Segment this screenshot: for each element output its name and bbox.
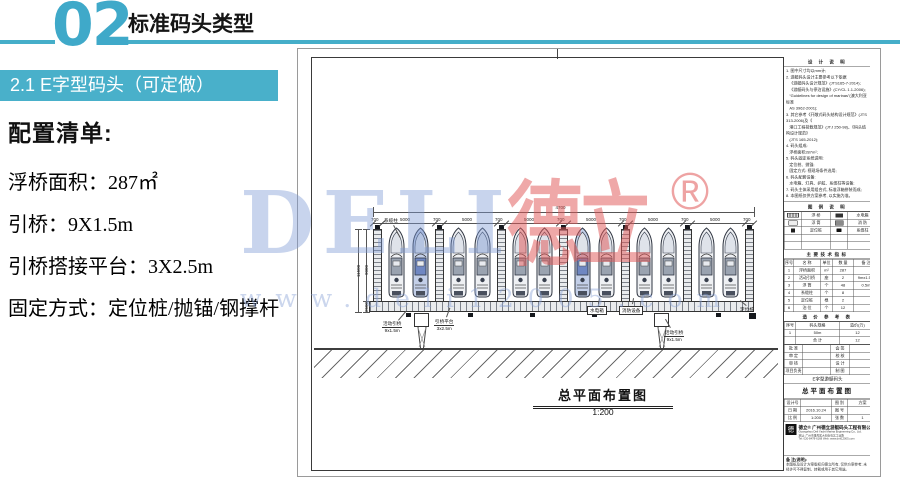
tech-title: 主要技术指标 [784, 249, 870, 259]
config-heading: 配置清单: [8, 114, 302, 148]
boat [449, 227, 468, 299]
boat [511, 227, 530, 299]
table-row: 定位桩系缆柱 [784, 227, 870, 235]
table-row: 150m12 [784, 329, 870, 337]
boat [473, 227, 492, 299]
table-cell [803, 360, 831, 368]
table-cell [784, 212, 802, 220]
boat-length-dim-value: 9000 [364, 265, 369, 275]
table-row: 日 期2016.10.24图 号 [784, 407, 870, 415]
tech-table-grid: 序号名 称单位数 量备 注1浮桥面积m²2872活动引桥座29mx1.5m3浮 … [784, 259, 870, 312]
table-cell: 1 [848, 414, 870, 422]
table-cell [848, 242, 870, 250]
label-platform: 引桥平台3x2.5m [434, 319, 454, 331]
table-cell: 2016.10.24 [801, 407, 832, 415]
dim-tick [751, 220, 757, 226]
legend-table-grid: 浮 桥水电箱浮 筒消 防定位桩系缆柱 [784, 211, 870, 249]
table-cell: 12 [833, 304, 854, 312]
shore-hatch [314, 350, 778, 378]
fire-symbol-icon [835, 220, 844, 225]
table-cell [848, 234, 870, 242]
company-contact: Tel: 020-8478-6168 Web: www.deli12005.co… [799, 437, 871, 440]
boat [535, 227, 554, 299]
overall-dimension-value: 4700 [556, 205, 566, 210]
table-cell [853, 297, 870, 305]
table-row: 审 核设 计 [784, 360, 870, 368]
finger-dim-value: 700 [495, 217, 503, 222]
config-item: 引桥搭接平台：3X2.5m [8, 246, 302, 288]
table-cell: 287 [833, 267, 854, 275]
finger-pier [373, 229, 382, 302]
table-cell [848, 407, 870, 415]
table-cell: 方案 [848, 399, 870, 407]
label-positioning-pile: 定位桩 [740, 307, 754, 313]
table-row: 1浮桥面积m²287 [784, 267, 870, 275]
table-row: 项目负责制 图 [784, 367, 870, 375]
header-rule-left [0, 40, 55, 44]
table-cell [784, 242, 802, 250]
boat [659, 227, 678, 299]
note-line: 《游艇码头设计规范》(JTS165-7-2014); [786, 81, 869, 87]
boat [697, 227, 716, 299]
table-row: 4系缆柱个8 [784, 289, 870, 297]
table-cell [849, 360, 870, 368]
label-fire-equipment: 消防设备 [619, 306, 643, 315]
company-block: 德 德立® 广州德立游艇码头工程有限公司 Guangzhou Deli Yach… [784, 422, 870, 456]
table-cell [784, 227, 802, 235]
table-cell: 消 防 [848, 219, 870, 227]
brand-name: 德立® [799, 425, 811, 430]
table-cell [830, 242, 848, 250]
price-title: 造 价 参 考 表 [784, 312, 870, 322]
table-cell: 校 核 [831, 352, 850, 360]
drawing-scale: 1:200 [533, 407, 673, 417]
table-cell: 个 [820, 282, 833, 290]
overall-dimension-line [373, 212, 754, 213]
dimension-extension [754, 207, 755, 217]
pile-symbol-icon [791, 228, 795, 232]
table-cell: 12 [839, 337, 870, 345]
design-notes: 1. 图中尺寸均以mm计;2. 游艇码头设计主要参考以下依据 《游艇码头设计规范… [784, 67, 870, 202]
table-cell: 名 称 [794, 259, 821, 267]
finger-pier [745, 229, 754, 302]
finger-dim-value: 700 [619, 217, 627, 222]
box-symbol-icon [835, 213, 843, 217]
price-table-grid: 序号码头规格造价(万)150m12合 计12 [784, 321, 870, 344]
table-cell: 系缆柱 [848, 227, 870, 235]
boat [573, 227, 592, 299]
finger-pier [559, 229, 568, 302]
section-title: 标准码头类型 [128, 8, 254, 38]
table-cell: 设 计 [831, 360, 850, 368]
table-cell: 8 [833, 289, 854, 297]
finger-pier [435, 229, 444, 302]
walkway-cleat [406, 313, 411, 317]
finger-pier [683, 229, 692, 302]
table-row [784, 242, 870, 250]
dim-tick [363, 312, 370, 313]
table-cell: 会 签 [831, 345, 850, 353]
table-cell [784, 234, 802, 242]
table-cell: 单位 [820, 259, 833, 267]
finger-dim-value: 700 [743, 217, 751, 222]
table-cell: 3 [784, 282, 794, 290]
table-row: 合 计12 [784, 337, 870, 345]
table-cell [830, 212, 848, 220]
slide-canvas: { "slide": { "accent_color": "#45AEC9", … [0, 0, 900, 485]
table-cell: 张 数 [831, 414, 848, 422]
tech-table: 序号名 称单位数 量备 注1浮桥面积m²2872活动引桥座29mx1.5m3浮 … [784, 259, 870, 312]
finger-dim-value: 700 [557, 217, 565, 222]
gangway-platform [414, 313, 429, 327]
boat [597, 227, 616, 299]
table-cell: 2 [784, 274, 794, 282]
table-cell: 9mx1.5m [853, 274, 870, 282]
meta-table-grid: 设计号图 别方案日 期2016.10.24图 号比 例1:200张 数1 [784, 399, 870, 422]
header-rule-right [121, 40, 900, 44]
engineering-drawing-panel: 4700700500070050007005000700500070050007… [297, 48, 881, 477]
table-cell: 活动引桥 [794, 274, 821, 282]
label-utility-box: 水电箱 [587, 306, 607, 315]
finger-dim-value: 700 [681, 217, 689, 222]
table-row: 3浮 筒个480.5m [784, 282, 870, 290]
note-line: “Guidelines for design of marinas”(澳大利亚标… [786, 93, 869, 106]
table-cell: 泊 位 [794, 304, 821, 312]
table-cell: 比 例 [784, 414, 801, 422]
config-list-block: 配置清单: 浮桥面积：287㎡引桥：9X1.5m引桥搭接平台：3X2.5m固定方… [8, 114, 302, 330]
table-cell: 备 注 [853, 259, 870, 267]
boat [721, 227, 740, 299]
table-cell [849, 367, 870, 375]
table-cell: 浮 桥 [802, 212, 831, 220]
table-cell: 审 核 [784, 360, 803, 368]
table-row: 序号名 称单位数 量备 注 [784, 259, 870, 267]
table-cell: 根 [820, 297, 833, 305]
boat [411, 227, 430, 299]
table-cell: 数 量 [833, 259, 854, 267]
dim-tick [355, 312, 362, 313]
table-row: 比 例1:200张 数1 [784, 414, 870, 422]
table-cell: 日 期 [784, 407, 801, 415]
label-gangway-left: 活动引桥9x1.5m [382, 321, 402, 333]
table-cell: 2 [833, 274, 854, 282]
legend-table: 浮 桥水电箱浮 筒消 防定位桩系缆柱 [784, 211, 870, 249]
table-cell: 序号 [784, 259, 794, 267]
table-cell [784, 337, 796, 345]
table-cell: 浮桥面积 [794, 267, 821, 275]
signature-table-grid: 批 准会 签审 定校 核审 核设 计项目负责制 图 [784, 344, 870, 375]
config-item: 固定方式：定位桩/抛锚/钢撑杆 [8, 288, 302, 330]
table-cell: 1:200 [801, 414, 832, 422]
table-cell: 项目负责 [784, 367, 803, 375]
finger-pier [621, 229, 630, 302]
pontoon-symbol-icon [788, 220, 798, 225]
legend-title: 图 例 说 明 [784, 202, 870, 212]
section-number: 02 [52, 0, 132, 60]
table-cell: 系缆柱 [794, 289, 821, 297]
walkway-cleat [530, 313, 535, 317]
table-cell [853, 304, 870, 312]
config-item: 浮桥面积：287㎡ [8, 162, 302, 204]
table-cell: 序号 [784, 322, 796, 330]
table-cell: 1 [784, 267, 794, 275]
table-cell: 水电箱 [848, 212, 870, 220]
table-cell: 50m [796, 329, 840, 337]
bay-dim-value: 5000 [710, 217, 720, 222]
table-cell: 个 [820, 289, 833, 297]
table-cell: 5 [784, 297, 794, 305]
table-cell: 浮 筒 [794, 282, 821, 290]
bay-dim-value: 5000 [648, 217, 658, 222]
table-cell: 座 [820, 274, 833, 282]
table-row: 序号码头规格造价(万) [784, 322, 870, 330]
drawing-title: 总平面布置图 [533, 385, 673, 409]
table-cell [849, 352, 870, 360]
cleat-symbol-icon [837, 229, 842, 233]
table-row: 6泊 位个12 [784, 304, 870, 312]
table-cell: 审 定 [784, 352, 803, 360]
project-name: E字型游艇码头 [784, 375, 870, 384]
table-cell [830, 219, 848, 227]
table-row: 浮 桥水电箱 [784, 212, 870, 220]
positioning-pile [749, 313, 756, 319]
table-cell: 12 [839, 329, 870, 337]
table-row [784, 234, 870, 242]
table-row: 浮 筒消 防 [784, 219, 870, 227]
table-cell: 定位桩 [794, 297, 821, 305]
table-cell [784, 219, 802, 227]
config-item: 引桥：9X1.5m [8, 204, 302, 246]
table-cell: 4 [784, 289, 794, 297]
table-cell: 个 [820, 304, 833, 312]
note-line: 8. 本图纸仅供方案参考, 以实施为准。 [786, 193, 869, 199]
table-cell: 定位桩 [802, 227, 831, 235]
boat [635, 227, 654, 299]
walkway-cleat [468, 313, 473, 317]
table-cell [830, 234, 848, 242]
walkway-cleat [716, 313, 721, 317]
table-cell: 制 图 [831, 367, 850, 375]
notes-title: 设 计 说 明 [784, 57, 870, 67]
main-walkway [369, 301, 754, 312]
note-line: 港口工程荷载规范》(JTJ 250-98)、《码头结构设计规范》 [786, 124, 869, 137]
titleblock-drawing-name: 总平面布置图 [784, 383, 870, 399]
table-cell [853, 289, 870, 297]
company-logo: 德 [786, 424, 797, 435]
table-cell [830, 227, 848, 235]
table-cell: 图 别 [831, 399, 848, 407]
bay-dim-value: 5000 [400, 217, 410, 222]
table-cell [801, 399, 832, 407]
table-cell: m² [820, 267, 833, 275]
note-line: 3. 其它参考《开敞式码头结构设计规范》(JTS 313-2006)及《 [786, 112, 869, 125]
bay-dim-value: 5000 [586, 217, 596, 222]
table-cell [802, 234, 831, 242]
table-cell: 6 [784, 304, 794, 312]
table-cell: 码头规格 [796, 322, 840, 330]
table-cell [802, 242, 831, 250]
table-cell: 合 计 [796, 337, 840, 345]
meta-table: 设计号图 别方案日 期2016.10.24图 号比 例1:200张 数1 [784, 399, 870, 422]
remark-block: 备 注(说明): 本图纸及设计方案版权归德立所有, 仅供方案参考; 未经许可不得… [784, 455, 870, 471]
table-cell: 浮 筒 [802, 219, 831, 227]
table-cell: 48 [833, 282, 854, 290]
price-table: 序号码头规格造价(万)150m12合 计12 [784, 321, 870, 344]
table-cell: 设计号 [784, 399, 801, 407]
finger-dim-value: 700 [433, 217, 441, 222]
table-row: 2活动引桥座29mx1.5m [784, 274, 870, 282]
table-row: 批 准会 签 [784, 345, 870, 353]
finger-dim-value: 700 [371, 217, 379, 222]
subsection-badge: 2.1 E字型码头（可定做） [0, 70, 278, 101]
sub-dimension-line [373, 223, 754, 224]
table-cell: 2 [833, 297, 854, 305]
table-cell [803, 352, 831, 360]
dock-symbol-icon [787, 213, 799, 218]
table-cell: 图 号 [831, 407, 848, 415]
table-cell [849, 345, 870, 353]
table-cell: 批 准 [784, 345, 803, 353]
finger-pier [497, 229, 506, 302]
table-cell: 1 [784, 329, 796, 337]
table-row: 5定位桩根2 [784, 297, 870, 305]
bay-dim-value: 5000 [524, 217, 534, 222]
dim-tick [363, 229, 370, 230]
table-cell: 0.5m [853, 282, 870, 290]
table-cell [853, 267, 870, 275]
table-row: 审 定校 核 [784, 352, 870, 360]
table-cell: 造价(万) [839, 322, 870, 330]
label-mooring-post: 系缆柱 [384, 218, 398, 224]
table-cell [803, 367, 831, 375]
title-block: 设 计 说 明 1. 图中尺寸均以mm计;2. 游艇码头设计主要参考以下依据 《… [783, 57, 870, 471]
dimension-extension [373, 207, 374, 217]
company-name-cn: 广州德立游艇码头工程有限公司 [812, 425, 870, 430]
table-row: 设计号图 别方案 [784, 399, 870, 407]
bay-dim-value: 5000 [462, 217, 472, 222]
config-list: 浮桥面积：287㎡引桥：9X1.5m引桥搭接平台：3X2.5m固定方式：定位桩/… [8, 162, 302, 330]
label-gangway-right: 活动引桥9x1.5m [664, 330, 684, 342]
walkway-width-dim-value: 2500 [364, 302, 369, 312]
remark-text: 本图纸及设计方案版权归德立所有, 仅供方案参考; 未经许可不得复制、转载或用于其… [786, 462, 869, 471]
dim-tick [355, 229, 362, 230]
outer-vertical-dim-value: 11500 [356, 265, 361, 277]
signature-table: 批 准会 签审 定校 核审 核设 计项目负责制 图 [784, 344, 870, 375]
boat [387, 227, 406, 299]
table-cell [803, 345, 831, 353]
